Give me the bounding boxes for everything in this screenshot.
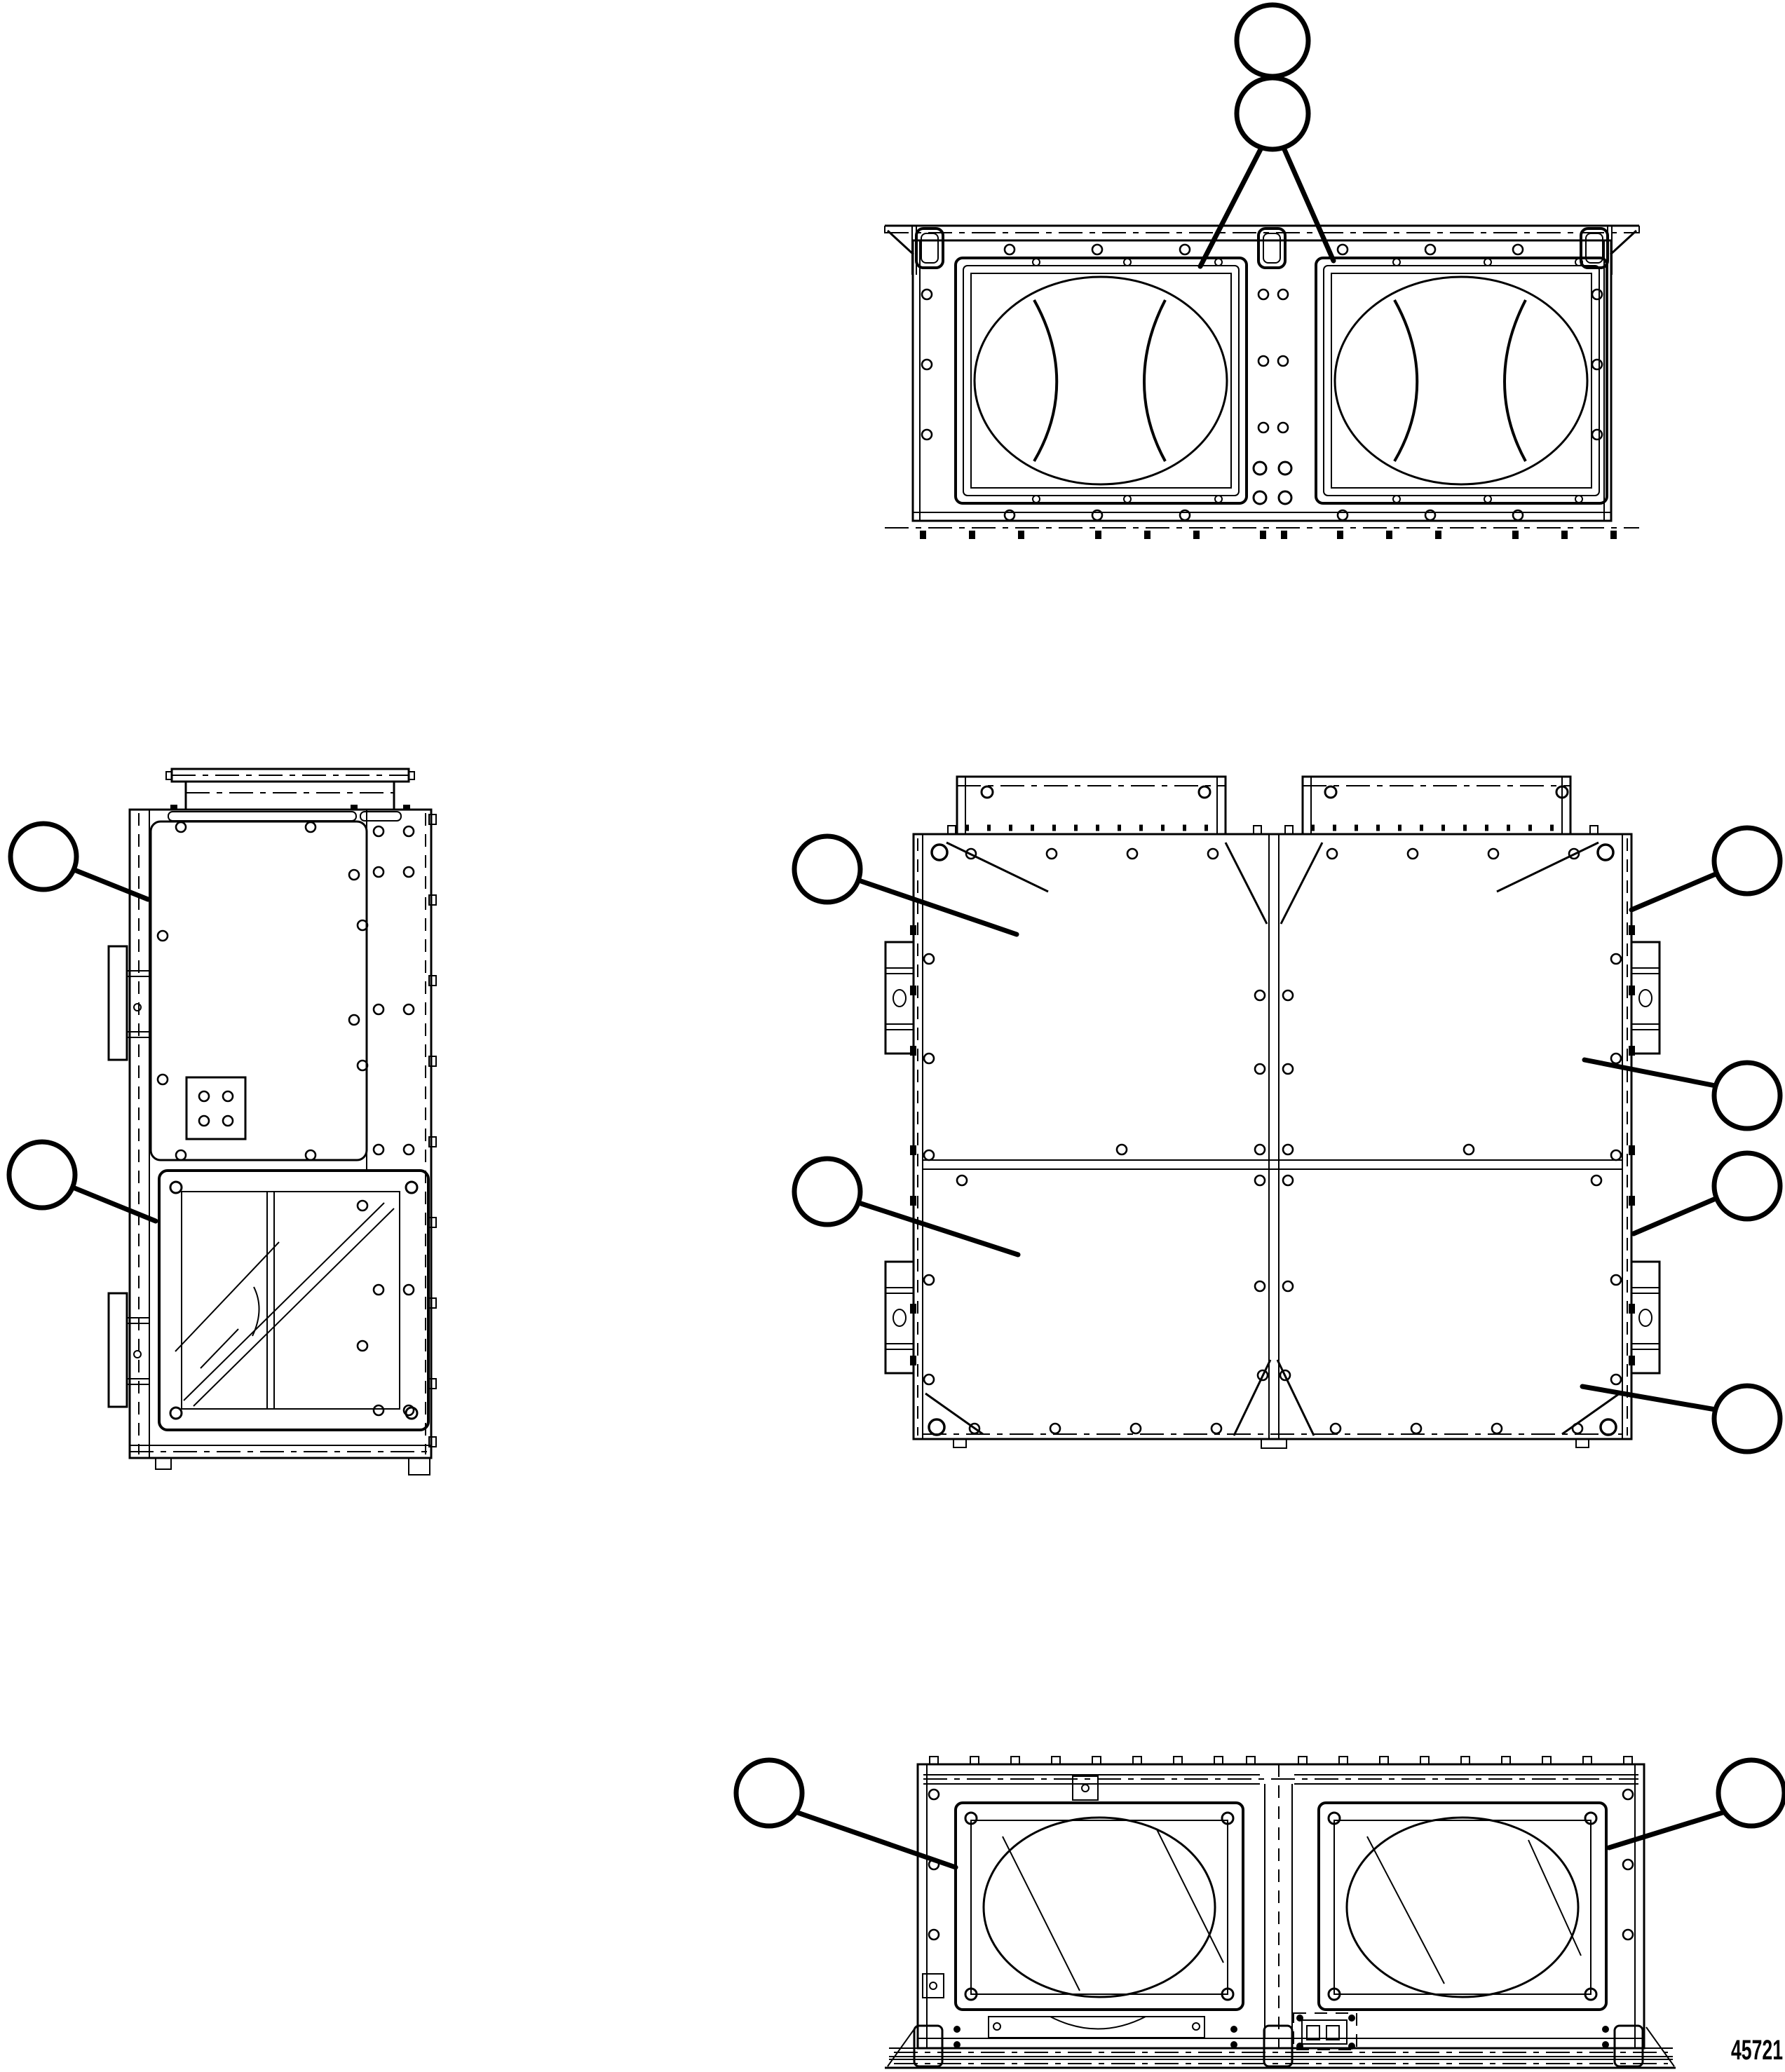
screw-hole xyxy=(1033,259,1040,266)
screw-hole xyxy=(1601,1419,1616,1435)
screw-hole xyxy=(1464,1145,1474,1154)
screw-hole xyxy=(929,1419,944,1435)
drawing-rect xyxy=(910,1046,916,1056)
connector-plate-4-holes xyxy=(186,1077,245,1139)
fan-guard-grille-top-left xyxy=(956,258,1247,503)
drawing-rect xyxy=(1285,826,1293,834)
screw-hole xyxy=(1255,1281,1265,1291)
screw-hole xyxy=(1254,491,1266,504)
screw-hole xyxy=(358,1201,367,1211)
screw-hole xyxy=(1127,849,1137,859)
grille-mesh xyxy=(182,1192,400,1409)
screw-hole xyxy=(1488,849,1498,859)
drawing-rect xyxy=(930,1757,938,1764)
screw-hole xyxy=(1283,1281,1293,1291)
drawing-rect xyxy=(1260,531,1266,539)
duct-flange-side xyxy=(166,769,414,810)
panel-seam-horizontal xyxy=(923,1160,1622,1169)
drawing-rect xyxy=(1610,531,1617,539)
screw-hole xyxy=(1199,786,1210,798)
drawing-line xyxy=(1646,2027,1674,2066)
screw-hole xyxy=(158,1075,168,1084)
bottom-top-rails xyxy=(923,1775,1638,1784)
side-balloon-lower-leader-line xyxy=(73,1187,156,1221)
screw-hole xyxy=(374,867,384,877)
screw-hole xyxy=(1598,845,1613,860)
screw-hole xyxy=(1255,1145,1265,1154)
screw-hole xyxy=(1408,849,1418,859)
drawing-rect xyxy=(989,2017,1204,2038)
drawing-rect xyxy=(1624,1757,1632,1764)
screw-hole xyxy=(1258,289,1268,299)
callout-layer xyxy=(9,5,1784,1867)
bottom-body-outline xyxy=(918,1764,1644,2048)
drawing-rect xyxy=(1386,531,1392,539)
screw-hole xyxy=(1212,1424,1221,1433)
screw-hole xyxy=(953,2026,961,2033)
front-balloon-right-lower xyxy=(1714,1386,1780,1452)
screw-hole xyxy=(1602,2041,1609,2048)
drawing-line xyxy=(1226,843,1267,924)
fan-blade xyxy=(1505,300,1526,461)
screw-hole xyxy=(1254,462,1266,475)
screw-hole xyxy=(1513,245,1523,254)
screw-hole xyxy=(1258,356,1268,366)
front-balloon-right-mid-a xyxy=(1714,1063,1780,1129)
screw-hole xyxy=(922,360,932,369)
screw-hole xyxy=(1611,1150,1621,1160)
fan-blade xyxy=(1394,300,1417,461)
screw-hole xyxy=(1278,356,1288,366)
screw-hole xyxy=(1623,1790,1633,1799)
fan-scroll-arc xyxy=(1050,2017,1146,2029)
drawing-rect xyxy=(1337,531,1343,539)
screw-hole xyxy=(1611,1375,1621,1384)
drawing-rect xyxy=(1561,531,1568,539)
screw-hole xyxy=(176,822,186,832)
panel-seam-vertical xyxy=(1269,834,1279,1439)
access-panel-screws xyxy=(158,822,359,1160)
foot xyxy=(953,1439,966,1447)
screw-hole xyxy=(929,1930,939,1940)
drawing-rect xyxy=(1629,925,1635,935)
top-panel-outline xyxy=(913,240,1611,521)
fan-circle xyxy=(984,1818,1215,1997)
screw-hole xyxy=(1484,496,1491,503)
screw-hole xyxy=(306,1150,315,1160)
fan-blade xyxy=(184,1203,384,1400)
front-balloon-left-upper xyxy=(794,836,860,902)
screw-hole xyxy=(930,1982,937,1989)
foot xyxy=(409,1458,430,1475)
bottom-balloon-left xyxy=(736,1760,802,1826)
drawing-rect xyxy=(1339,1757,1348,1764)
screw-hole xyxy=(1283,1175,1293,1185)
screw-hole xyxy=(1283,1064,1293,1074)
drawing-rect xyxy=(910,986,916,995)
front-balloon-right-upper-leader-line xyxy=(1631,874,1716,910)
screw-hole xyxy=(1005,245,1014,254)
drawing-rect xyxy=(1092,1757,1101,1764)
screw-hole xyxy=(306,822,315,832)
drawing-rect xyxy=(1281,531,1287,539)
top-balloon-lower xyxy=(1237,78,1308,149)
front-mounting-bracket-left-lower xyxy=(885,1262,914,1373)
screw-hole xyxy=(1255,1064,1265,1074)
drawing-line xyxy=(1497,843,1599,892)
screw-hole xyxy=(924,1054,934,1063)
small-plate xyxy=(1073,1776,1098,1800)
front-balloon-right-mid-a-leader-line xyxy=(1584,1060,1716,1086)
screw-hole xyxy=(1393,496,1400,503)
screw-hole xyxy=(1082,1785,1089,1792)
drawing-rect xyxy=(1319,1803,1606,2010)
drawing-rect xyxy=(1461,1757,1470,1764)
front-balloon-left-upper-leader-line xyxy=(859,880,1017,934)
fan-blade xyxy=(1367,1836,1444,1984)
drawing-rect xyxy=(970,1757,979,1764)
screw-hole xyxy=(170,1408,182,1419)
screw-hole xyxy=(134,1351,141,1358)
drawing-rect xyxy=(885,942,914,1054)
screw-hole xyxy=(406,1408,417,1419)
drawing-rect xyxy=(109,946,127,1060)
screw-hole xyxy=(1278,289,1288,299)
condenser-grille-bottom-left xyxy=(956,1803,1243,2010)
screw-hole xyxy=(1623,1860,1633,1869)
fan-blade xyxy=(1144,300,1165,461)
drawing-line xyxy=(1562,1393,1620,1434)
drawing-rect xyxy=(1144,531,1151,539)
fan-circle xyxy=(975,277,1227,484)
drawing-rect xyxy=(1590,826,1598,834)
screw-hole xyxy=(199,1116,209,1126)
drawing-rect xyxy=(1324,266,1599,496)
screw-hole xyxy=(953,2041,961,2048)
bottom-edge-screws xyxy=(929,1790,1633,1940)
drawing-rect xyxy=(1629,1356,1635,1365)
drawing-rect xyxy=(1629,1304,1635,1314)
hvac-unit-engineering-drawing: 45721 xyxy=(0,0,1785,2072)
view-bottom xyxy=(885,1757,1676,2068)
screw-hole xyxy=(406,1182,417,1193)
drawing-rect xyxy=(1631,942,1660,1054)
screw-hole xyxy=(1611,1054,1621,1063)
foot xyxy=(1615,2026,1643,2066)
drawing-rect xyxy=(1095,531,1101,539)
lifting-slot-center xyxy=(1258,229,1285,268)
drawing-rect xyxy=(921,233,938,263)
drawing-line xyxy=(1281,843,1322,924)
screw-hole xyxy=(349,870,359,880)
top-edge-feet xyxy=(920,531,1617,539)
screw-hole xyxy=(374,1405,384,1415)
drawing-rect xyxy=(1542,1757,1551,1764)
screw-hole xyxy=(1393,259,1400,266)
drawing-rect xyxy=(403,805,410,810)
front-balloon-right-upper xyxy=(1714,828,1780,894)
fan-guard-grille-top-right xyxy=(1316,258,1607,503)
screw-hole xyxy=(1193,2023,1200,2030)
drawing-rect xyxy=(910,1304,916,1314)
drawing-line xyxy=(946,843,1048,892)
fan-circle xyxy=(1335,277,1587,484)
screw-hole xyxy=(1208,849,1218,859)
fan-blade xyxy=(1034,300,1057,461)
drawing-rect xyxy=(1631,1262,1660,1373)
screw-hole xyxy=(922,430,932,439)
drawing-rect xyxy=(1629,1046,1635,1056)
drawing-line xyxy=(201,1329,238,1368)
drawing-line xyxy=(888,2027,916,2066)
drawing-rect xyxy=(1435,531,1441,539)
front-edge-tabs xyxy=(910,826,1635,1365)
screw-hole xyxy=(1215,259,1222,266)
fan-circle xyxy=(893,1309,906,1326)
bottom-balloon-right xyxy=(1718,1760,1784,1826)
fan-housing-bottom-plate xyxy=(953,2017,1609,2048)
front-mounting-bracket-left-upper xyxy=(885,942,914,1054)
front-mounting-bracket-right-upper xyxy=(1631,942,1660,1054)
drawing-rect xyxy=(1502,1757,1510,1764)
drawing-rect xyxy=(1254,826,1261,834)
screw-hole xyxy=(1131,1424,1141,1433)
side-balloon-lower xyxy=(9,1142,75,1208)
drawing-rect xyxy=(920,531,926,539)
access-panel xyxy=(151,822,367,1160)
screw-hole xyxy=(134,1004,141,1011)
fan-circle xyxy=(893,990,906,1007)
screw-hole xyxy=(1591,1175,1601,1185)
drawing-rect xyxy=(1073,1776,1098,1800)
drawing-rect xyxy=(956,1803,1243,2010)
drawing-rect xyxy=(1629,986,1635,995)
drawing-rect xyxy=(948,826,956,834)
fan-blade xyxy=(1528,1840,1581,1956)
screw-hole xyxy=(1348,2015,1355,2022)
front-balloon-right-mid-b-leader-line xyxy=(1634,1199,1716,1234)
screw-hole xyxy=(957,1175,967,1185)
screw-hole xyxy=(1230,2041,1237,2048)
screw-hole xyxy=(1124,259,1131,266)
drawing-line xyxy=(925,1393,983,1434)
screw-hole xyxy=(982,786,993,798)
guard-mesh xyxy=(971,273,1231,488)
screw-hole xyxy=(404,1145,414,1154)
side-intake-grille xyxy=(159,1171,428,1430)
drawing-rect xyxy=(1298,1757,1307,1764)
fan-circle xyxy=(1347,1818,1578,1997)
drawing-rect xyxy=(885,1262,914,1373)
screw-hole xyxy=(1180,245,1190,254)
screw-hole xyxy=(924,1150,934,1160)
drawing-rect xyxy=(1133,1757,1141,1764)
drawing-line xyxy=(1610,231,1636,254)
screw-hole xyxy=(932,845,947,860)
screw-hole xyxy=(1258,423,1268,432)
screw-hole xyxy=(1623,1930,1633,1940)
screw-hole xyxy=(1592,360,1602,369)
drawing-rect xyxy=(109,1293,127,1407)
bottom-balloon-right-leader-line xyxy=(1609,1812,1725,1848)
screw-hole xyxy=(1092,245,1102,254)
side-balloon-upper xyxy=(11,824,76,890)
drawing-rect xyxy=(923,1974,944,1998)
screw-hole xyxy=(1278,423,1288,432)
screw-hole xyxy=(1425,245,1435,254)
drawing-rect xyxy=(1583,1757,1591,1764)
screw-hole xyxy=(374,826,384,836)
screw-hole xyxy=(223,1091,233,1101)
screw-hole xyxy=(1611,954,1621,964)
screw-hole xyxy=(1296,2015,1303,2022)
drawing-rect xyxy=(1420,1757,1429,1764)
screw-hole xyxy=(924,1375,934,1384)
screw-hole xyxy=(929,1790,939,1799)
screw-hole xyxy=(1230,2026,1237,2033)
drawing-rect xyxy=(1247,1757,1255,1764)
drawing-rect xyxy=(1214,1757,1223,1764)
side-body-outline xyxy=(130,810,431,1458)
foot xyxy=(1576,1439,1589,1447)
fan-blade xyxy=(194,1208,394,1406)
screw-hole xyxy=(1033,496,1040,503)
drawing-rect xyxy=(351,805,358,810)
screw-hole xyxy=(924,954,934,964)
fan-blade xyxy=(175,1242,279,1351)
figure-code: 45721 xyxy=(1731,2035,1783,2066)
drawing-rect xyxy=(186,1077,245,1139)
bottom-balloon-left-leader-line xyxy=(796,1812,956,1867)
screw-hole xyxy=(1338,245,1348,254)
screw-hole xyxy=(922,289,932,299)
screw-hole xyxy=(1327,849,1337,859)
screw-hole xyxy=(924,1275,934,1285)
drawing-rect xyxy=(910,925,916,935)
grille-mesh xyxy=(971,1820,1228,1994)
bottom-top-edge-tabs xyxy=(930,1757,1632,1764)
drawing-rect xyxy=(170,805,177,810)
screw-hole xyxy=(1602,2026,1609,2033)
top-balloon-lower-leader-line xyxy=(1284,148,1333,261)
view-top xyxy=(885,226,1639,539)
screw-hole xyxy=(1325,786,1336,798)
base-skid xyxy=(885,2026,1676,2068)
screw-hole xyxy=(1279,462,1291,475)
drawing-rect xyxy=(1193,531,1200,539)
fan-circle xyxy=(1639,990,1652,1007)
duct-flange-front-left xyxy=(957,777,1226,834)
screw-hole xyxy=(1255,1175,1265,1185)
drawing-rect xyxy=(1052,1757,1060,1764)
drawing-rect xyxy=(910,1196,916,1206)
screw-hole xyxy=(1283,1145,1293,1154)
screw-hole xyxy=(1124,496,1131,503)
view-front xyxy=(885,777,1660,1448)
screw-hole xyxy=(1283,990,1293,1000)
top-rail-strip xyxy=(168,812,356,821)
view-left-side xyxy=(109,769,436,1475)
top-balloon-upper xyxy=(1237,5,1308,76)
front-balloon-right-mid-b xyxy=(1714,1153,1780,1219)
screw-hole xyxy=(404,867,414,877)
screw-hole xyxy=(374,1004,384,1014)
screw-hole xyxy=(1117,1145,1127,1154)
foot xyxy=(156,1458,171,1469)
screw-hole xyxy=(358,1341,367,1351)
screw-hole xyxy=(374,1285,384,1295)
screw-hole xyxy=(223,1116,233,1126)
foot xyxy=(1261,1439,1287,1448)
screw-hole xyxy=(1331,1424,1341,1433)
drawing-rect xyxy=(1629,1145,1635,1155)
drawing-rect xyxy=(963,266,1239,496)
screw-hole xyxy=(1215,496,1222,503)
drawing-rect xyxy=(159,1171,428,1430)
drawing-rect xyxy=(1263,233,1280,263)
edge-plate-left xyxy=(923,1974,944,1998)
screw-hole xyxy=(1255,990,1265,1000)
screw-hole xyxy=(176,1150,186,1160)
front-mounting-bracket-right-lower xyxy=(1631,1262,1660,1373)
drawing-rect xyxy=(1629,1196,1635,1206)
side-balloon-upper-leader-line xyxy=(74,870,148,899)
screw-hole xyxy=(1592,430,1602,439)
screw-hole xyxy=(1050,1424,1060,1433)
guard-mesh xyxy=(1331,273,1591,488)
screw-hole xyxy=(1573,1424,1582,1433)
screw-hole xyxy=(404,1285,414,1295)
junction-box xyxy=(1294,2013,1357,2050)
screw-hole xyxy=(349,1015,359,1025)
drawing-rect xyxy=(969,531,975,539)
drawing-rect xyxy=(1174,1757,1182,1764)
screw-hole xyxy=(1279,491,1291,504)
screw-hole xyxy=(1575,496,1582,503)
front-view-screws xyxy=(924,845,1621,1435)
screw-hole xyxy=(1411,1424,1421,1433)
drawing-rect xyxy=(956,258,1247,503)
condenser-grille-bottom-right xyxy=(1319,1803,1606,2010)
top-balloon-lower-leader-line xyxy=(1200,148,1261,266)
drawing-page: 45721 xyxy=(0,0,1785,2072)
front-balloon-left-lower-leader-line xyxy=(859,1203,1018,1255)
screw-hole xyxy=(374,1145,384,1154)
drawing-rect xyxy=(1258,229,1285,268)
drawing-rect xyxy=(1316,258,1607,503)
drawing-rect xyxy=(1512,531,1519,539)
screw-hole xyxy=(1484,259,1491,266)
front-balloon-left-lower xyxy=(794,1159,860,1225)
screw-hole xyxy=(158,931,168,941)
screw-hole xyxy=(170,1182,182,1193)
drawing-rect xyxy=(910,1356,916,1365)
drawing-rect xyxy=(1380,1757,1388,1764)
drawing-rect xyxy=(1011,1757,1019,1764)
drawing-line xyxy=(888,231,914,254)
corner-gussets xyxy=(925,843,1620,1436)
screw-hole xyxy=(404,1004,414,1014)
screw-hole xyxy=(1047,849,1057,859)
duct-flange-front-right xyxy=(1303,777,1570,834)
drawing-rect xyxy=(910,1145,916,1155)
drawing-rect xyxy=(1018,531,1024,539)
screw-hole xyxy=(1611,1275,1621,1285)
drawing-path xyxy=(252,1287,259,1336)
screw-hole xyxy=(993,2023,1000,2030)
screw-hole xyxy=(1492,1424,1502,1433)
screw-hole xyxy=(404,826,414,836)
